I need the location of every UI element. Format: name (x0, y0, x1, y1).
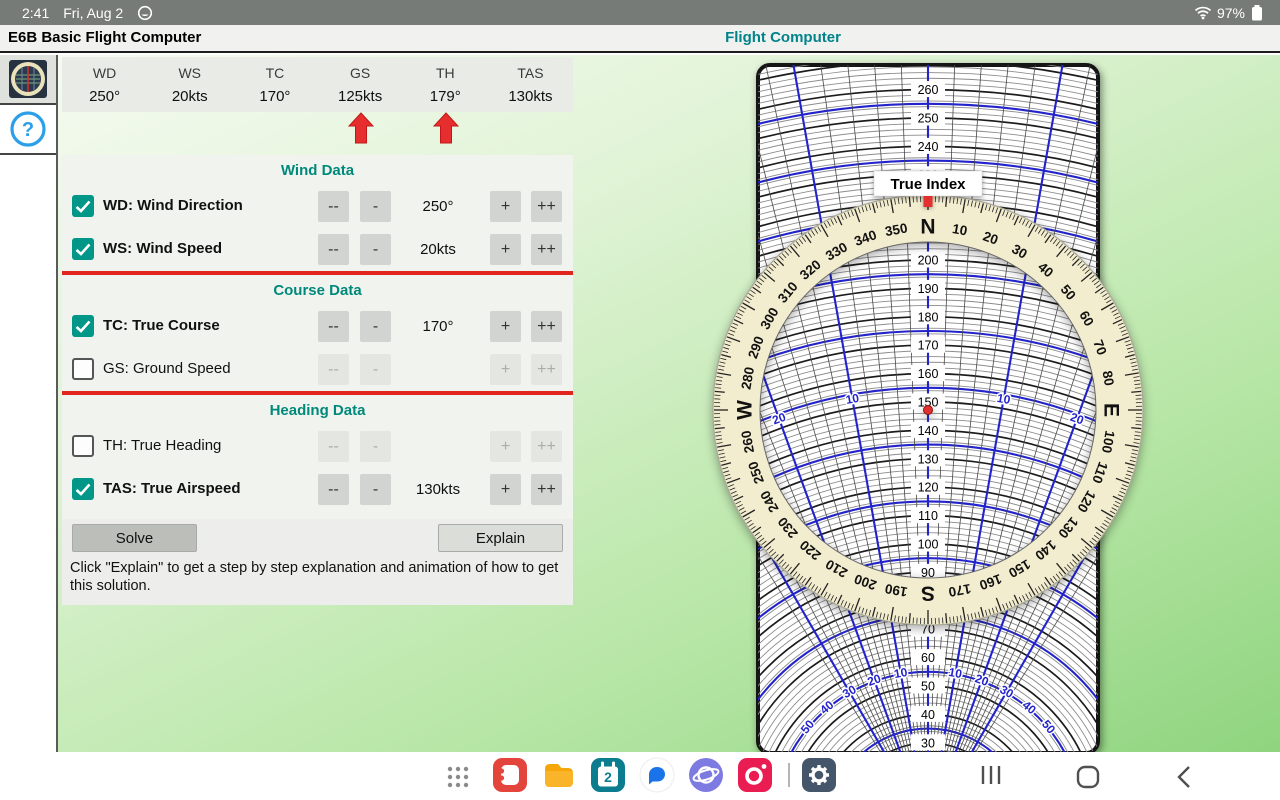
recents-nav-button[interactable] (981, 765, 1001, 785)
clock: 2:41 (22, 5, 49, 21)
messages-icon[interactable] (639, 757, 675, 793)
svg-text:N: N (920, 216, 935, 239)
svg-text:240: 240 (918, 140, 939, 154)
explain-hint-text: Click "Explain" to get a step by step ex… (62, 557, 573, 605)
checkmark-icon (75, 243, 91, 256)
tas-decrement-10-button[interactable]: -- (318, 474, 349, 505)
svg-text:140: 140 (918, 424, 939, 438)
gs-increment-button[interactable]: + (490, 354, 521, 385)
wd-value: 250° (392, 198, 484, 215)
gs-decrement-10-button[interactable]: -- (318, 354, 349, 385)
camera-icon[interactable] (737, 757, 773, 793)
gs-label: GS: Ground Speed (103, 360, 231, 377)
app-title: E6B Basic Flight Computer (8, 29, 201, 46)
result-wd: WD 250° (62, 57, 147, 112)
tc-increment-10-button[interactable]: ++ (531, 311, 562, 342)
settings-icon[interactable] (801, 757, 837, 793)
ws-increment-button[interactable]: + (490, 234, 521, 265)
tc-increment-button[interactable]: + (490, 311, 521, 342)
result-gs: GS 125kts (318, 57, 403, 112)
dock-separator (788, 763, 790, 787)
sidebar: ? (0, 55, 58, 752)
svg-text:110: 110 (918, 509, 938, 523)
e6b-wheel-graphic[interactable]: 3040506070809010011012013014015016017018… (640, 55, 1220, 755)
svg-text:130: 130 (918, 452, 939, 466)
svg-text:10: 10 (948, 665, 964, 681)
svg-text:W: W (734, 400, 757, 420)
action-strip: Solve Explain (62, 519, 573, 557)
svg-text:S: S (921, 582, 935, 605)
th-label: TH: True Heading (103, 437, 221, 454)
solved-arrow-gs-icon (348, 112, 374, 144)
svg-text:100: 100 (918, 538, 939, 552)
tas-label: TAS: True Airspeed (103, 480, 241, 497)
svg-text:50: 50 (921, 680, 935, 694)
svg-text:180: 180 (918, 310, 939, 324)
ws-checkbox[interactable] (72, 238, 94, 260)
section-title-wind: Wind Data (62, 155, 573, 185)
svg-text:80: 80 (1100, 370, 1117, 387)
ws-value: 20kts (392, 241, 484, 258)
battery-percent: 97% (1217, 5, 1245, 21)
ws-label: WS: Wind Speed (103, 240, 222, 257)
svg-text:190: 190 (918, 282, 939, 296)
th-increment-10-button[interactable]: ++ (531, 431, 562, 462)
svg-text:120: 120 (918, 481, 939, 495)
night-mode-icon (137, 5, 153, 21)
svg-text:60: 60 (921, 651, 935, 665)
battery-icon (1250, 4, 1264, 22)
result-ws: WS 20kts (147, 57, 232, 112)
e6b-wheel-icon (8, 59, 48, 99)
back-nav-button[interactable] (1176, 765, 1192, 789)
th-decrement-button[interactable]: - (360, 431, 391, 462)
sidebar-item-flight-computer[interactable] (0, 55, 56, 105)
results-strip: WD 250° WS 20kts TC 170° GS 125kts TH 17… (62, 57, 573, 112)
svg-text:10: 10 (893, 665, 909, 681)
ws-increment-10-button[interactable]: ++ (531, 234, 562, 265)
tas-checkbox[interactable] (72, 478, 94, 500)
tas-decrement-button[interactable]: - (360, 474, 391, 505)
svg-text:30: 30 (921, 736, 935, 750)
svg-text:260: 260 (918, 83, 939, 97)
gs-decrement-button[interactable]: - (360, 354, 391, 385)
checkmark-icon (75, 320, 91, 333)
home-nav-button[interactable] (1076, 765, 1100, 789)
date: Fri, Aug 2 (63, 5, 123, 21)
app-drawer-icon[interactable] (447, 766, 469, 788)
calendar-day-number: 2 (604, 769, 612, 785)
tc-label: TC: True Course (103, 317, 220, 334)
result-tc: TC 170° (232, 57, 317, 112)
tas-increment-button[interactable]: + (490, 474, 521, 505)
wd-decrement-button[interactable]: - (360, 191, 391, 222)
row-true-heading: TH: True Heading -- - + ++ (62, 425, 573, 468)
wd-decrement-10-button[interactable]: -- (318, 191, 349, 222)
tc-decrement-button[interactable]: - (360, 311, 391, 342)
wd-checkbox[interactable] (72, 195, 94, 217)
app-bar: E6B Basic Flight Computer Flight Compute… (0, 25, 1280, 53)
th-checkbox[interactable] (72, 435, 94, 457)
solved-arrow-th-icon (433, 112, 459, 144)
notes-app-icon[interactable] (492, 757, 528, 793)
checkmark-icon (75, 200, 91, 213)
row-true-airspeed: TAS: True Airspeed -- - 130kts + ++ (62, 468, 573, 511)
tc-checkbox[interactable] (72, 315, 94, 337)
svg-text:True Index: True Index (890, 176, 966, 193)
svg-text:?: ? (22, 119, 34, 141)
row-ground-speed: GS: Ground Speed -- - + ++ (62, 348, 573, 391)
svg-text:10: 10 (951, 221, 968, 238)
svg-text:160: 160 (918, 367, 939, 381)
calendar-icon[interactable]: 2 (590, 757, 626, 793)
explain-button[interactable]: Explain (438, 524, 563, 552)
tc-decrement-10-button[interactable]: -- (318, 311, 349, 342)
control-panel: Wind Data WD: Wind Direction -- - 250° +… (62, 155, 573, 605)
svg-text:250: 250 (918, 112, 939, 126)
internet-browser-icon[interactable] (688, 757, 724, 793)
e6b-wheel[interactable]: 3040506070809010011012013014015016017018… (640, 55, 1220, 755)
svg-text:E: E (1100, 403, 1123, 417)
help-icon: ? (10, 111, 46, 147)
section-title-heading: Heading Data (62, 395, 573, 425)
gs-increment-10-button[interactable]: ++ (531, 354, 562, 385)
svg-text:170: 170 (918, 339, 939, 353)
wd-increment-button[interactable]: + (490, 191, 521, 222)
section-title-course: Course Data (62, 275, 573, 305)
row-wind-direction: WD: Wind Direction -- - 250° + ++ (62, 185, 573, 228)
tas-value: 130kts (392, 481, 484, 498)
svg-text:40: 40 (921, 708, 935, 722)
row-wind-speed: WS: Wind Speed -- - 20kts + ++ (62, 228, 573, 271)
my-files-icon[interactable] (541, 757, 577, 793)
svg-text:10: 10 (845, 391, 861, 407)
svg-text:200: 200 (918, 254, 939, 268)
page-title: Flight Computer (725, 29, 841, 46)
wd-label: WD: Wind Direction (103, 197, 243, 214)
th-increment-button[interactable]: + (490, 431, 521, 462)
tas-increment-10-button[interactable]: ++ (531, 474, 562, 505)
result-th: TH 179° (403, 57, 488, 112)
status-bar: 2:41 Fri, Aug 2 97% (0, 0, 1280, 25)
wd-increment-10-button[interactable]: ++ (531, 191, 562, 222)
svg-text:10: 10 (996, 391, 1012, 407)
tc-value: 170° (392, 318, 484, 335)
result-tas: TAS 130kts (488, 57, 573, 112)
checkmark-icon (75, 483, 91, 496)
solve-button[interactable]: Solve (72, 524, 197, 552)
sidebar-item-help[interactable]: ? (0, 105, 56, 155)
ws-decrement-button[interactable]: - (360, 234, 391, 265)
ws-decrement-10-button[interactable]: -- (318, 234, 349, 265)
gs-checkbox[interactable] (72, 358, 94, 380)
th-decrement-10-button[interactable]: -- (318, 431, 349, 462)
wifi-icon (1194, 5, 1212, 20)
row-true-course: TC: True Course -- - 170° + ++ (62, 305, 573, 348)
